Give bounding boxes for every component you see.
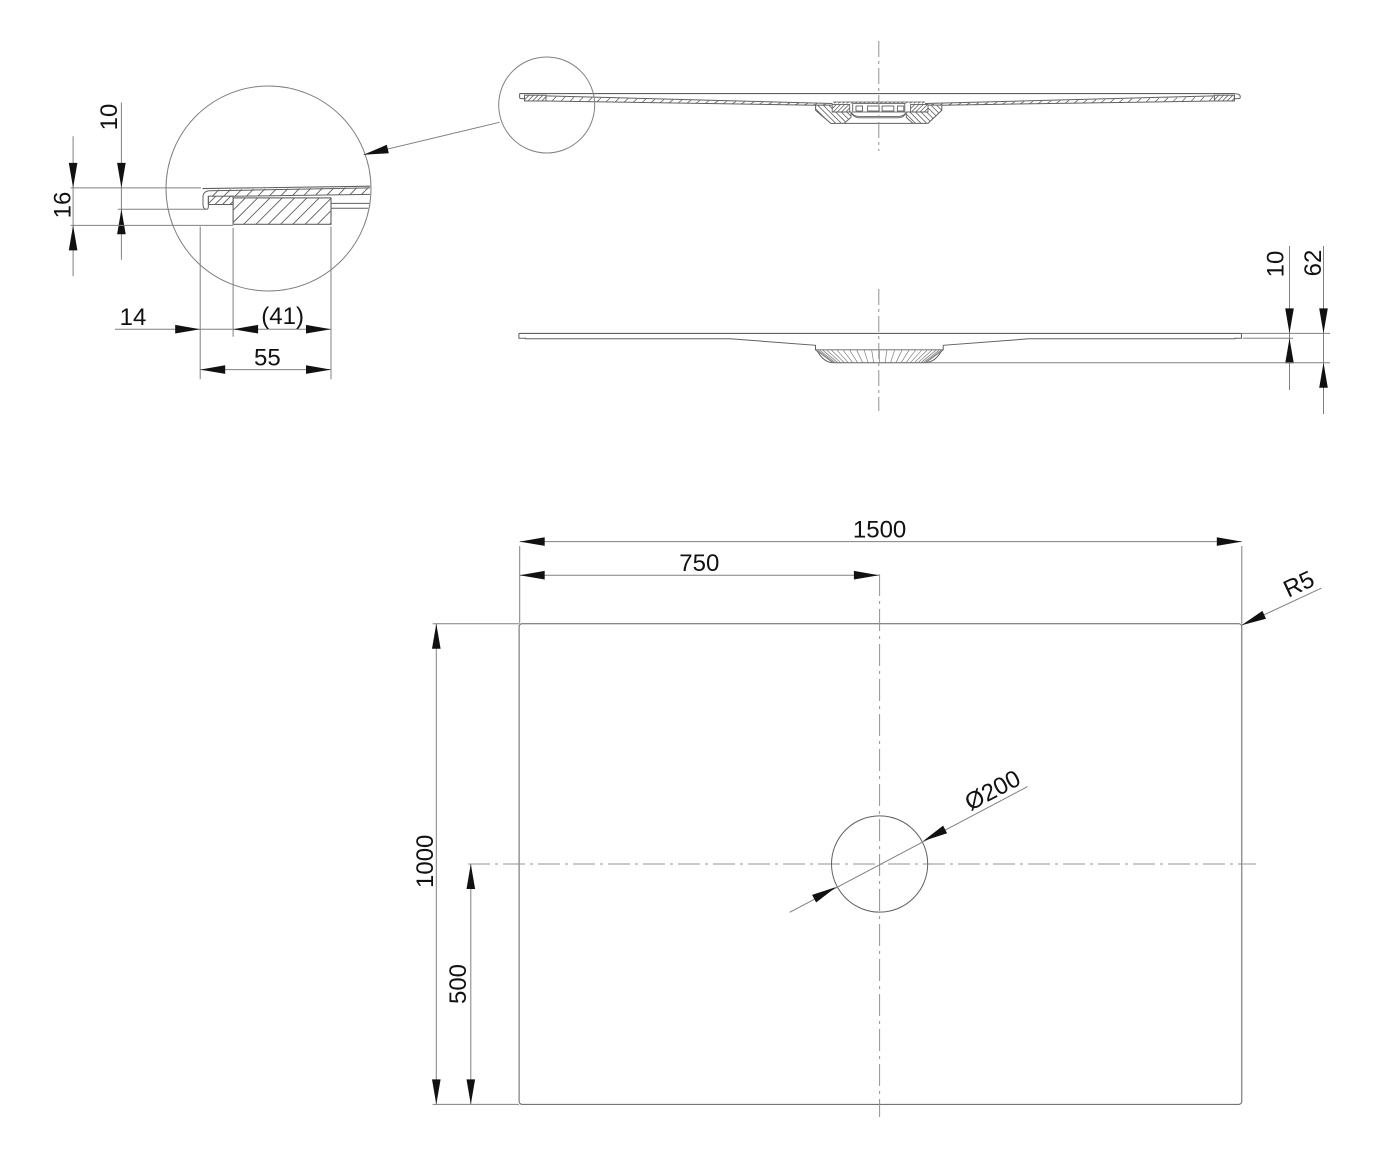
svg-text:55: 55	[254, 345, 281, 372]
svg-text:1000: 1000	[412, 835, 439, 888]
svg-text:500: 500	[445, 964, 472, 1004]
svg-text:14: 14	[120, 304, 147, 331]
svg-text:750: 750	[679, 550, 719, 577]
svg-text:10: 10	[96, 104, 123, 131]
svg-text:62: 62	[1300, 250, 1327, 277]
svg-text:10: 10	[1263, 251, 1290, 278]
svg-text:(41): (41)	[261, 303, 304, 330]
svg-text:1500: 1500	[853, 517, 906, 544]
svg-text:16: 16	[49, 192, 76, 219]
